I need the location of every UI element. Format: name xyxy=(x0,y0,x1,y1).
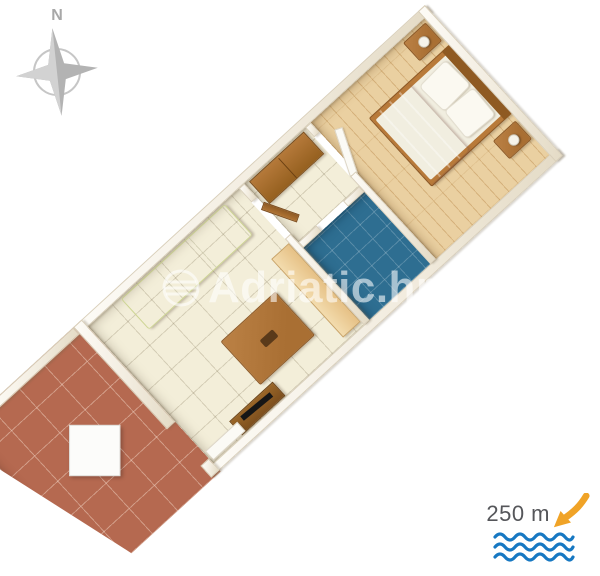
compass-rose-icon: N xyxy=(12,6,102,118)
table-decor xyxy=(260,329,279,348)
wardrobe-door-split xyxy=(278,158,297,178)
direction-to-sea-arrow-icon xyxy=(552,493,590,531)
bedside-lamp xyxy=(506,132,522,148)
compass-north-label: N xyxy=(51,7,63,24)
distance-label: 250 m xyxy=(486,501,550,531)
terrace-table xyxy=(69,425,120,476)
distance-to-sea: 250 m xyxy=(478,493,590,570)
bedside-lamp xyxy=(416,34,432,50)
floorplan-image: N Adriatic.hr 250 m xyxy=(0,0,600,576)
sea-waves-icon xyxy=(492,531,576,565)
